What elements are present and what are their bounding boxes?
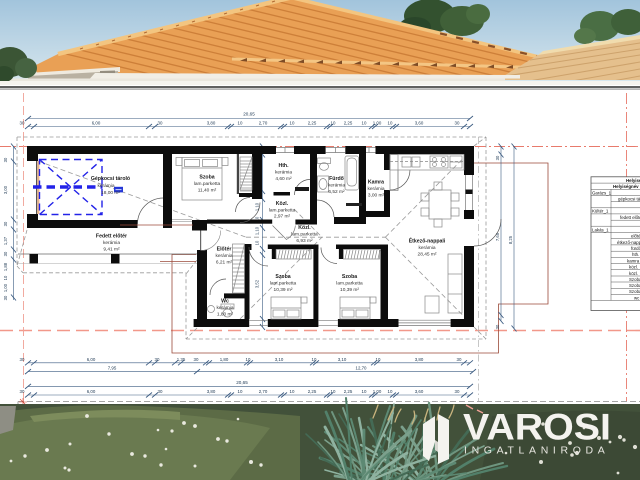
svg-text:Kültér_1: Kültér_1 (592, 209, 609, 214)
svg-text:1,00: 1,00 (373, 120, 382, 125)
svg-text:30: 30 (20, 357, 25, 362)
svg-text:wc: wc (634, 295, 640, 300)
svg-text:kerámia: kerámia (328, 183, 345, 189)
svg-text:hth.: hth. (632, 252, 639, 257)
svg-text:30: 30 (495, 155, 500, 160)
svg-text:1,00: 1,00 (373, 389, 382, 394)
svg-text:1,10: 1,10 (255, 226, 260, 235)
svg-text:3,80: 3,80 (207, 120, 216, 125)
svg-text:7,95: 7,95 (108, 365, 117, 370)
svg-text:10: 10 (3, 275, 8, 280)
svg-text:10: 10 (238, 120, 243, 125)
svg-text:gépkocsi tároló: gépkocsi tároló (618, 196, 640, 201)
svg-text:Lakás_1: Lakás_1 (592, 227, 609, 232)
svg-text:Wc: Wc (221, 299, 229, 305)
svg-text:INGATLANIRODA: INGATLANIRODA (464, 445, 610, 457)
svg-text:10: 10 (238, 389, 243, 394)
svg-text:közl.: közl. (629, 265, 638, 270)
svg-text:10: 10 (290, 120, 295, 125)
svg-text:Közl.: Közl. (276, 201, 289, 207)
svg-text:3,52: 3,52 (255, 279, 260, 288)
svg-text:kerámia: kerámia (216, 305, 233, 311)
svg-text:étkező-nappali: étkező-nappali (617, 240, 640, 245)
svg-text:6,93 m²: 6,93 m² (296, 238, 313, 244)
svg-text:Szoba: Szoba (275, 274, 290, 280)
svg-text:30: 30 (20, 389, 25, 394)
svg-text:10: 10 (331, 389, 336, 394)
svg-text:30: 30 (455, 389, 460, 394)
svg-text:10: 10 (376, 357, 381, 362)
svg-text:Helyiségnév: Helyiségnév (613, 184, 639, 189)
svg-text:Fürdő: Fürdő (329, 176, 344, 182)
svg-text:1,88: 1,88 (3, 262, 8, 271)
svg-text:Szoba: Szoba (629, 283, 640, 288)
svg-text:Étkező-nappali: Étkező-nappali (409, 237, 446, 245)
svg-text:6,52 m²: 6,52 m² (328, 189, 345, 195)
svg-text:3,80: 3,80 (207, 389, 216, 394)
svg-text:1,00: 1,00 (3, 283, 8, 292)
svg-text:30: 30 (155, 357, 160, 362)
svg-text:2,25: 2,25 (344, 389, 353, 394)
svg-text:20,65: 20,65 (243, 112, 255, 117)
svg-text:28,45 m²: 28,45 m² (418, 252, 437, 258)
svg-text:2,70: 2,70 (259, 389, 268, 394)
svg-text:Előtér: Előtér (217, 247, 232, 253)
svg-text:lam.parketta: lam.parketta (270, 281, 297, 287)
svg-text:12,70: 12,70 (356, 365, 368, 370)
svg-text:kamra: kamra (627, 259, 640, 264)
svg-text:20,65: 20,65 (236, 380, 248, 385)
svg-text:Közl.: Közl. (298, 225, 311, 231)
svg-text:Garázs_1: Garázs_1 (592, 190, 612, 195)
svg-text:6,00: 6,00 (92, 120, 101, 125)
svg-text:10: 10 (362, 120, 367, 125)
svg-text:Szoba: Szoba (629, 289, 640, 294)
svg-text:7,65: 7,65 (495, 232, 500, 241)
svg-text:11,40 m²: 11,40 m² (198, 188, 217, 194)
svg-text:3,00 m²: 3,00 m² (368, 193, 385, 199)
svg-text:3,80: 3,80 (415, 357, 424, 362)
svg-text:Szoba: Szoba (199, 175, 214, 181)
svg-text:10: 10 (388, 120, 393, 125)
svg-text:10: 10 (255, 240, 260, 245)
svg-text:Szoba: Szoba (342, 274, 357, 280)
svg-text:6,21 m²: 6,21 m² (216, 260, 233, 266)
svg-text:Gépkocsi tároló: Gépkocsi tároló (91, 176, 130, 182)
svg-text:10: 10 (290, 389, 295, 394)
svg-text:kerámia: kerámia (215, 253, 232, 259)
svg-text:fürdő: fürdő (631, 246, 640, 251)
svg-text:30: 30 (158, 120, 163, 125)
svg-text:4,60 m²: 4,60 m² (275, 176, 292, 182)
svg-text:10,39 m²: 10,39 m² (340, 287, 359, 293)
svg-text:fedett előtér: fedett előtér (620, 215, 640, 220)
svg-text:8,25: 8,25 (508, 235, 513, 244)
svg-text:közl.: közl. (629, 271, 638, 276)
svg-text:6,00: 6,00 (87, 389, 96, 394)
svg-text:30: 30 (457, 357, 462, 362)
svg-text:Helyiségek: Helyiségek (626, 178, 640, 183)
svg-text:30: 30 (3, 251, 8, 256)
svg-text:6,00: 6,00 (87, 357, 96, 362)
svg-text:10,39 m²: 10,39 m² (274, 287, 293, 293)
svg-text:lam.parketta: lam.parketta (194, 181, 221, 187)
svg-text:30: 30 (158, 389, 163, 394)
svg-text:Fedett előtér: Fedett előtér (96, 234, 127, 240)
svg-text:1,80: 1,80 (220, 357, 229, 362)
svg-text:30: 30 (455, 120, 460, 125)
svg-text:30: 30 (194, 357, 199, 362)
svg-text:2,97 m²: 2,97 m² (274, 214, 291, 220)
svg-text:kerámia: kerámia (418, 245, 435, 251)
svg-text:10: 10 (246, 357, 251, 362)
svg-text:1,37: 1,37 (3, 236, 8, 245)
svg-text:Szoba: Szoba (629, 277, 640, 282)
svg-text:30: 30 (20, 120, 25, 125)
svg-text:2,25: 2,25 (308, 389, 317, 394)
svg-text:lam.parketta: lam.parketta (336, 281, 363, 287)
svg-text:3,10: 3,10 (338, 357, 347, 362)
svg-text:1,35: 1,35 (177, 357, 186, 362)
svg-text:lam.parketta: lam.parketta (269, 208, 296, 214)
svg-text:VAROSI: VAROSI (463, 407, 611, 448)
svg-text:30: 30 (3, 221, 8, 226)
svg-text:3,60: 3,60 (415, 120, 424, 125)
svg-text:10: 10 (331, 120, 336, 125)
svg-text:kerámia: kerámia (367, 186, 384, 192)
svg-text:10: 10 (388, 389, 393, 394)
svg-text:3,60: 3,60 (415, 389, 424, 394)
svg-text:2,25: 2,25 (344, 120, 353, 125)
svg-text:3,00: 3,00 (3, 185, 8, 194)
svg-text:Hth.: Hth. (278, 163, 289, 169)
svg-text:3,10: 3,10 (275, 357, 284, 362)
svg-text:Kamra: Kamra (368, 180, 384, 186)
svg-text:30: 30 (3, 157, 8, 162)
svg-text:10: 10 (312, 357, 317, 362)
svg-text:30: 30 (495, 324, 500, 329)
svg-text:9,41 m²: 9,41 m² (103, 247, 120, 253)
svg-text:18,00 m²: 18,00 m² (101, 190, 120, 196)
svg-text:lam.parketta: lam.parketta (291, 232, 318, 238)
svg-text:kerámia: kerámia (97, 183, 114, 189)
svg-text:előtér: előtér (631, 234, 640, 239)
svg-text:30: 30 (3, 295, 8, 300)
svg-text:1,80 m²: 1,80 m² (217, 312, 234, 318)
svg-text:kerámia: kerámia (103, 240, 120, 246)
svg-text:10: 10 (362, 389, 367, 394)
svg-text:kerámia: kerámia (275, 170, 292, 176)
svg-text:2,25: 2,25 (308, 120, 317, 125)
svg-text:2,70: 2,70 (259, 120, 268, 125)
